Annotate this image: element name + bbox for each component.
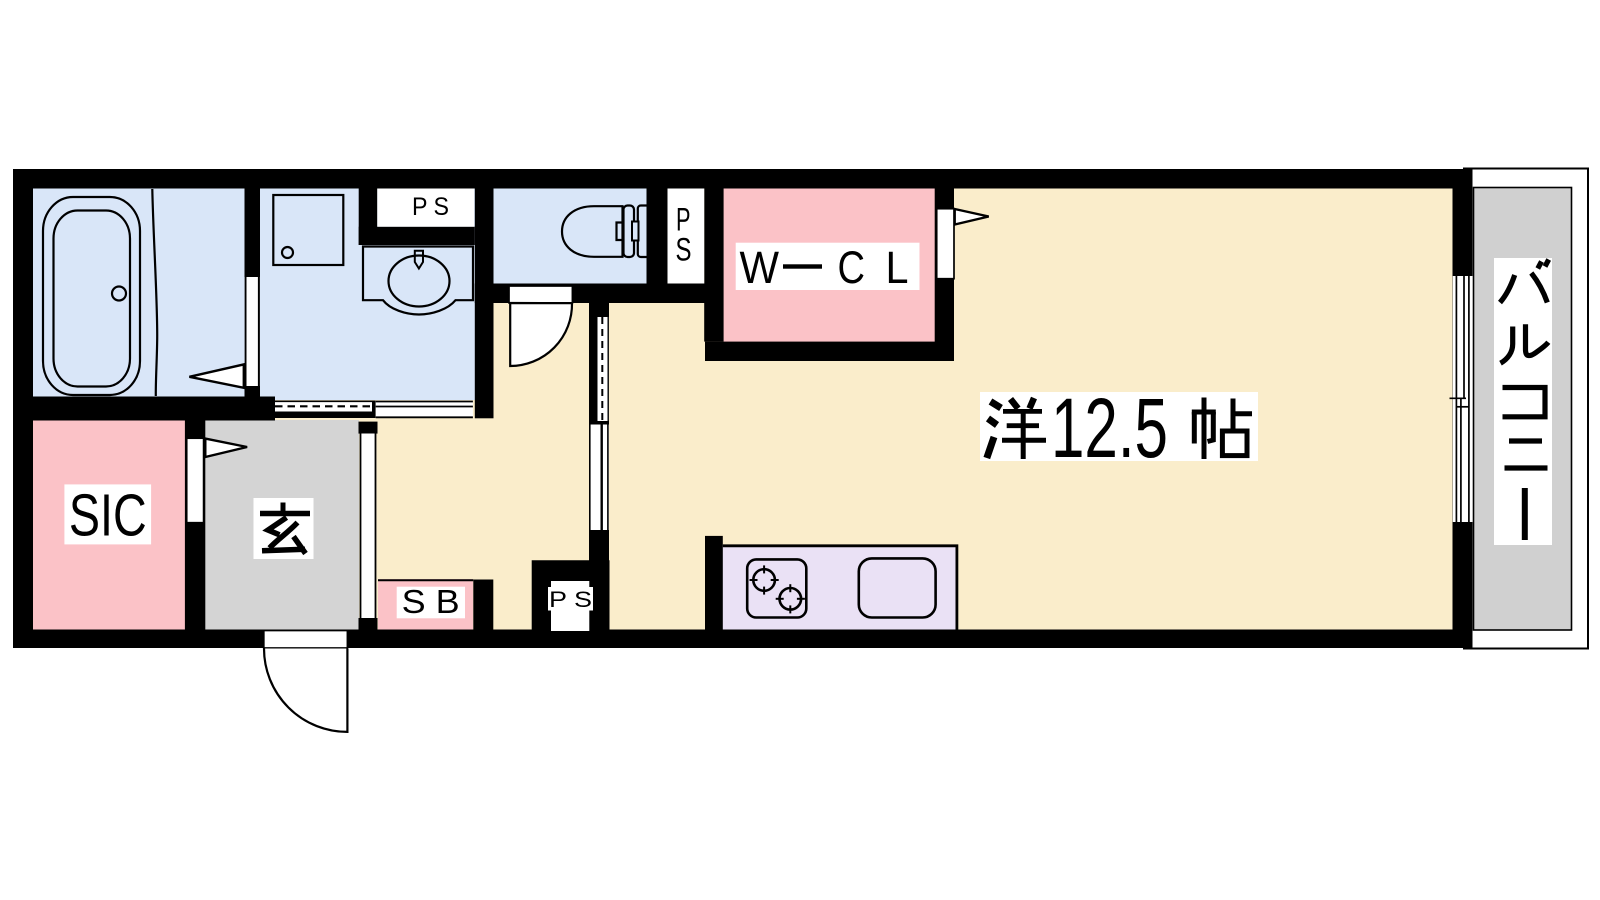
svg-text:P S: P S (412, 193, 449, 221)
svg-text:C: C (838, 242, 866, 293)
svg-text:S B: S B (402, 583, 460, 620)
svg-text:W: W (740, 242, 780, 293)
svg-text:12.5: 12.5 (1051, 381, 1168, 475)
svg-text:S: S (676, 232, 692, 268)
svg-text:L: L (886, 242, 909, 293)
svg-text:P S: P S (549, 587, 592, 612)
svg-text:SIC: SIC (69, 483, 147, 549)
